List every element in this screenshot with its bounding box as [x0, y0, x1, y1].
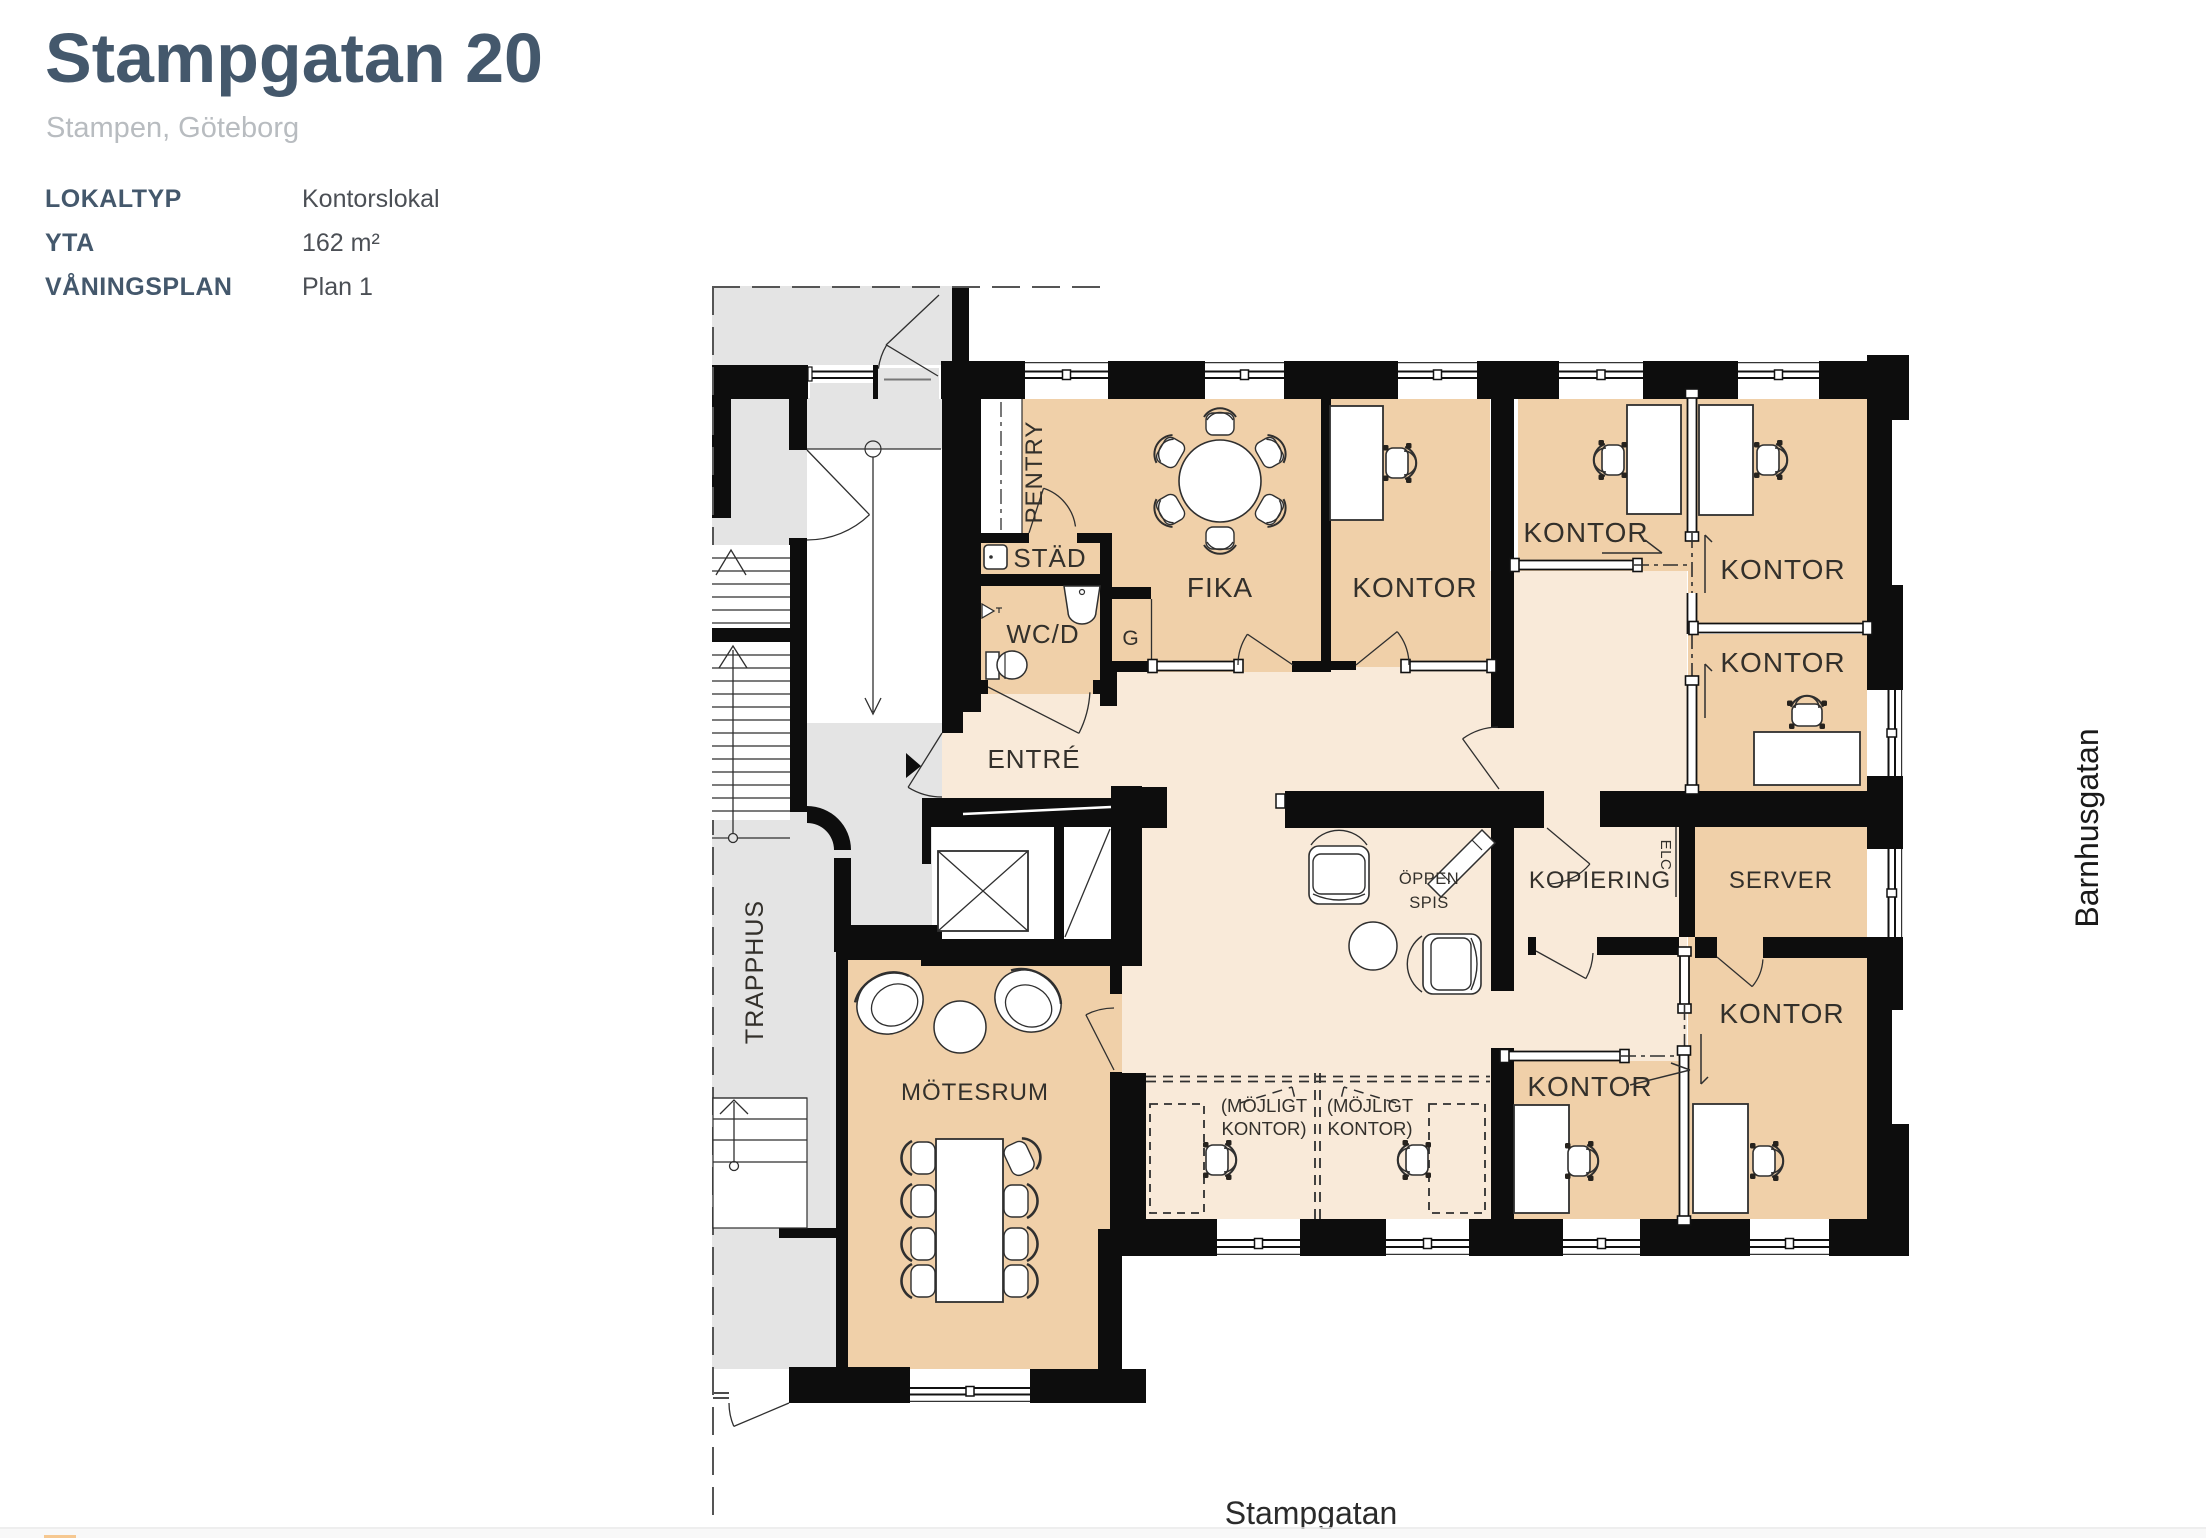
svg-text:Kontorslokal: Kontorslokal — [302, 185, 440, 213]
svg-text:Stampgatan: Stampgatan — [1225, 1495, 1398, 1531]
svg-text:PENTRY: PENTRY — [1021, 421, 1048, 524]
svg-text:VÅNINGSPLAN: VÅNINGSPLAN — [45, 272, 232, 301]
svg-text:KONTOR: KONTOR — [1720, 554, 1845, 585]
svg-text:KOPIERING: KOPIERING — [1529, 867, 1671, 894]
svg-text:KONTOR: KONTOR — [1527, 1071, 1652, 1102]
svg-text:SERVER: SERVER — [1729, 867, 1833, 894]
svg-text:(MÖJLIGT: (MÖJLIGT — [1327, 1095, 1413, 1116]
svg-text:G: G — [1122, 627, 1139, 650]
svg-text:WC/D: WC/D — [1006, 619, 1079, 649]
svg-text:KONTOR: KONTOR — [1352, 572, 1477, 603]
svg-text:162 m²: 162 m² — [302, 229, 380, 257]
svg-text:Barnhusgatan: Barnhusgatan — [2069, 728, 2105, 927]
svg-text:YTA: YTA — [45, 229, 95, 257]
svg-text:KONTOR): KONTOR) — [1328, 1118, 1413, 1139]
svg-text:MÖTESRUM: MÖTESRUM — [901, 1079, 1049, 1106]
svg-text:(MÖJLIGT: (MÖJLIGT — [1221, 1095, 1307, 1116]
svg-text:KONTOR): KONTOR) — [1222, 1118, 1307, 1139]
svg-text:SPIS: SPIS — [1409, 894, 1449, 912]
svg-text:Plan 1: Plan 1 — [302, 273, 373, 301]
svg-text:KONTOR: KONTOR — [1719, 998, 1844, 1029]
svg-text:KONTOR: KONTOR — [1720, 647, 1845, 678]
svg-text:ENTRÉ: ENTRÉ — [987, 744, 1080, 774]
svg-text:ELC: ELC — [1657, 840, 1674, 871]
svg-text:KONTOR: KONTOR — [1523, 517, 1648, 548]
svg-text:STÄD: STÄD — [1013, 543, 1086, 573]
svg-text:Stampen, Göteborg: Stampen, Göteborg — [46, 112, 299, 144]
svg-text:Stampgatan 20: Stampgatan 20 — [45, 19, 543, 97]
svg-text:FIKA: FIKA — [1187, 572, 1253, 603]
svg-text:ÖPPEN: ÖPPEN — [1399, 870, 1459, 888]
svg-text:TRAPPHUS: TRAPPHUS — [741, 900, 769, 1044]
svg-text:LOKALTYP: LOKALTYP — [45, 185, 182, 213]
